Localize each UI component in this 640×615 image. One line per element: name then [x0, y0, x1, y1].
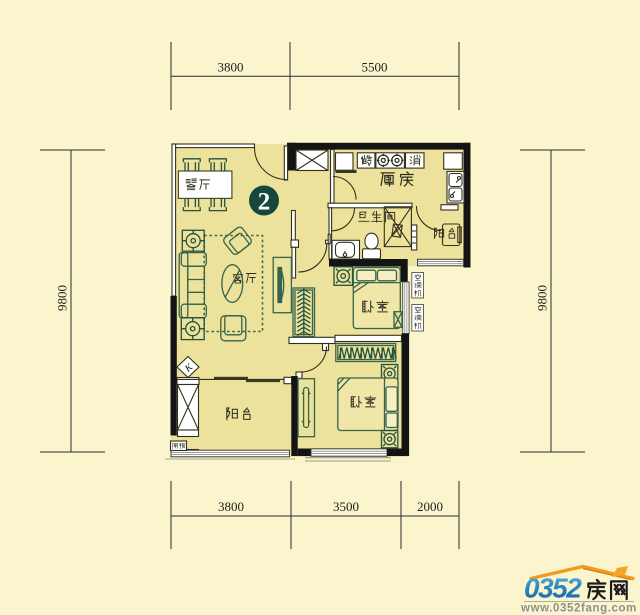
- svg-text:2: 2: [258, 189, 271, 216]
- svg-text:3500: 3500: [333, 499, 359, 514]
- svg-text:5500: 5500: [362, 60, 388, 75]
- svg-text:2000: 2000: [417, 499, 443, 514]
- svg-text:9800: 9800: [535, 285, 550, 311]
- svg-text:0352: 0352: [524, 573, 582, 604]
- svg-text:9800: 9800: [55, 285, 70, 311]
- svg-text:3800: 3800: [218, 60, 244, 75]
- svg-text:www.0352fang.com: www.0352fang.com: [520, 603, 637, 615]
- svg-text:3800: 3800: [218, 499, 244, 514]
